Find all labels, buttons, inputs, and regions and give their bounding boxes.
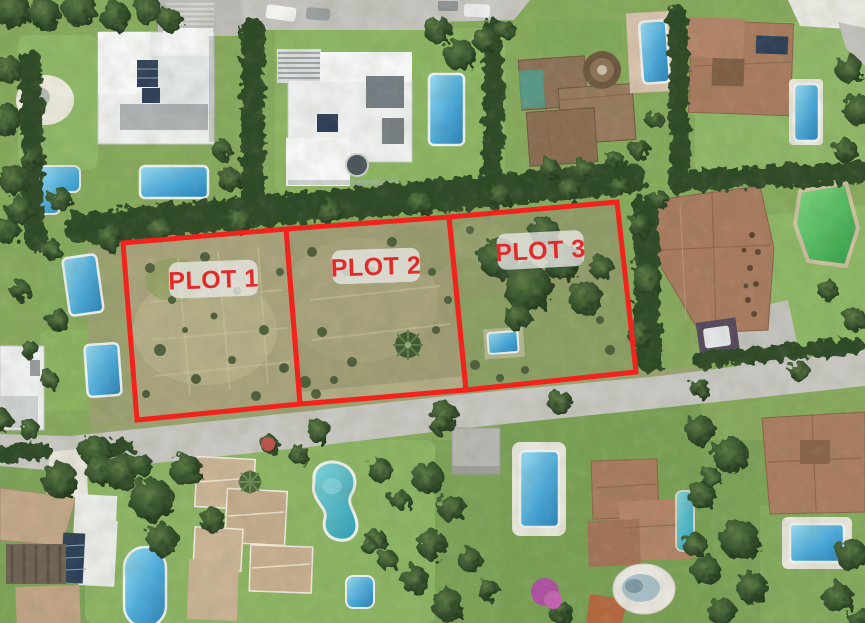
aerial-photo: PLOT 1 PLOT 2 PLOT 3 — [0, 0, 865, 623]
plot-3-label: PLOT 3 — [494, 230, 586, 271]
plot-3-label-text: PLOT 3 — [495, 235, 587, 268]
plot-1-label: PLOT 1 — [168, 259, 260, 298]
plot-2-label-text: PLOT 2 — [330, 251, 421, 282]
plot-1-label-text: PLOT 1 — [168, 264, 259, 295]
satellite-map: PLOT 1 PLOT 2 PLOT 3 — [0, 0, 865, 623]
plot-2-label: PLOT 2 — [330, 247, 422, 284]
